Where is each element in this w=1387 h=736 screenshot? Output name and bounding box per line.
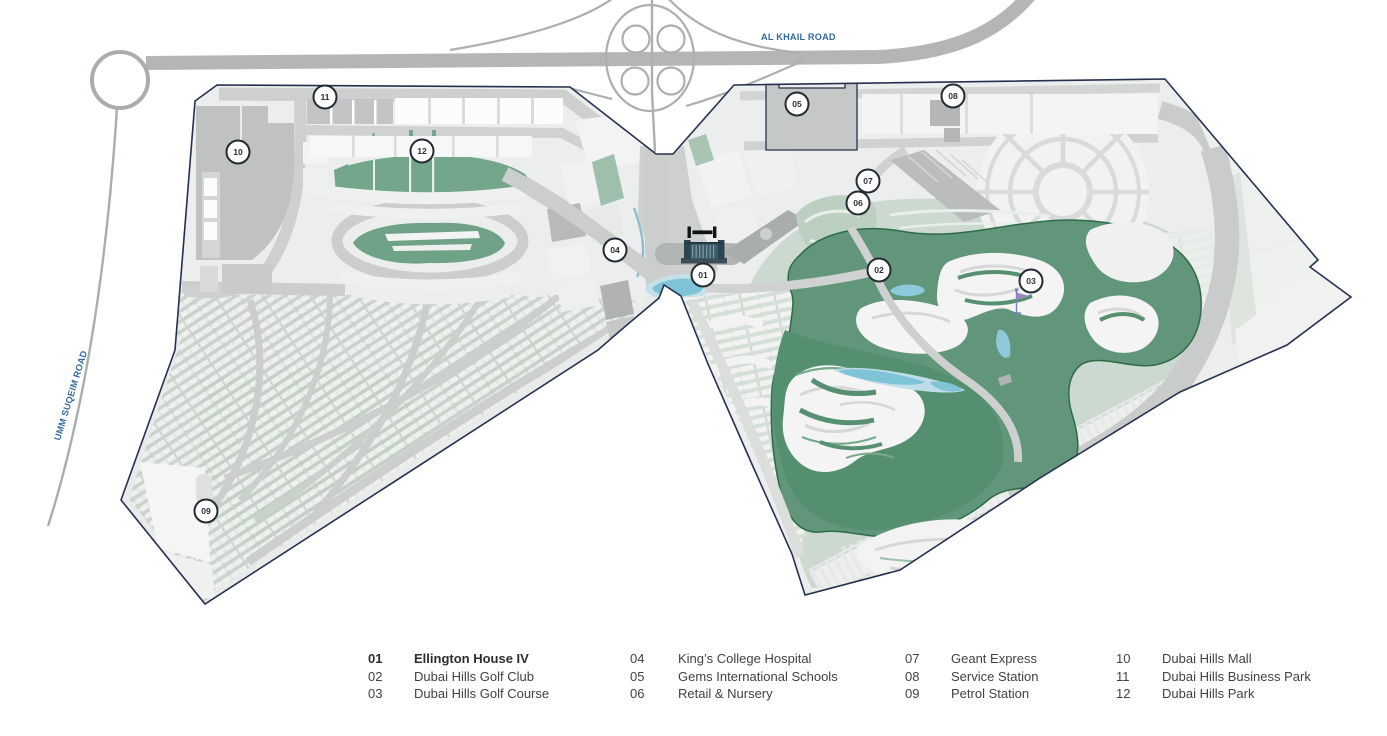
svg-text:07: 07 xyxy=(905,651,919,666)
svg-text:05: 05 xyxy=(792,99,802,109)
svg-text:03: 03 xyxy=(368,686,382,701)
svg-text:02: 02 xyxy=(874,265,884,275)
svg-text:12: 12 xyxy=(1116,686,1130,701)
svg-text:Geant Express: Geant Express xyxy=(951,651,1037,666)
svg-text:05: 05 xyxy=(630,669,644,684)
svg-text:Ellington House IV: Ellington House IV xyxy=(414,651,529,666)
svg-text:01: 01 xyxy=(368,651,382,666)
svg-text:09: 09 xyxy=(201,506,211,516)
svg-text:Petrol Station: Petrol Station xyxy=(951,686,1029,701)
svg-text:Dubai Hills Business Park: Dubai Hills Business Park xyxy=(1162,669,1311,684)
svg-text:Dubai Hills Golf Course: Dubai Hills Golf Course xyxy=(414,686,549,701)
svg-text:Retail & Nursery: Retail & Nursery xyxy=(678,686,773,701)
svg-text:AL KHAIL ROAD: AL KHAIL ROAD xyxy=(761,32,836,42)
svg-text:11: 11 xyxy=(320,92,329,102)
svg-text:Dubai Hills Park: Dubai Hills Park xyxy=(1162,686,1255,701)
svg-text:Gems International Schools: Gems International Schools xyxy=(678,669,838,684)
svg-text:03: 03 xyxy=(1026,276,1036,286)
svg-text:06: 06 xyxy=(853,198,863,208)
svg-text:11: 11 xyxy=(1116,669,1130,684)
svg-text:King’s College Hospital: King’s College Hospital xyxy=(678,651,812,666)
svg-text:04: 04 xyxy=(610,245,620,255)
svg-text:UMM SUQEIM ROAD: UMM SUQEIM ROAD xyxy=(52,349,89,441)
svg-text:Dubai Hills Golf Club: Dubai Hills Golf Club xyxy=(414,669,534,684)
svg-text:10: 10 xyxy=(1116,651,1130,666)
svg-text:02: 02 xyxy=(368,669,382,684)
svg-text:Service Station: Service Station xyxy=(951,669,1038,684)
svg-text:07: 07 xyxy=(863,176,873,186)
svg-text:10: 10 xyxy=(233,147,243,157)
svg-text:08: 08 xyxy=(905,669,919,684)
svg-text:09: 09 xyxy=(905,686,919,701)
svg-text:12: 12 xyxy=(417,146,427,156)
svg-text:01: 01 xyxy=(698,270,708,280)
svg-text:08: 08 xyxy=(948,91,958,101)
svg-text:Dubai Hills Mall: Dubai Hills Mall xyxy=(1162,651,1252,666)
svg-text:06: 06 xyxy=(630,686,644,701)
svg-text:04: 04 xyxy=(630,651,644,666)
